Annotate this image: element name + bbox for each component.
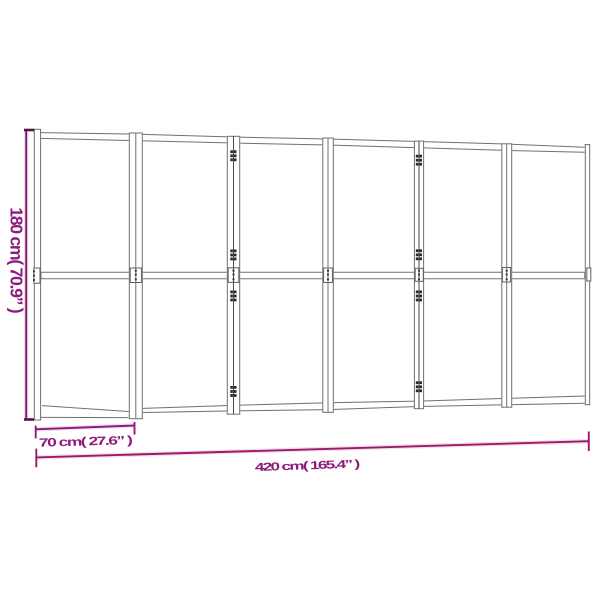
svg-text:180 cm( 70.9” ): 180 cm( 70.9” ): [7, 207, 27, 313]
svg-text:420 cm( 165.4” ): 420 cm( 165.4” ): [255, 458, 361, 474]
svg-text:70 cm( 27.6” ): 70 cm( 27.6” ): [39, 434, 133, 450]
